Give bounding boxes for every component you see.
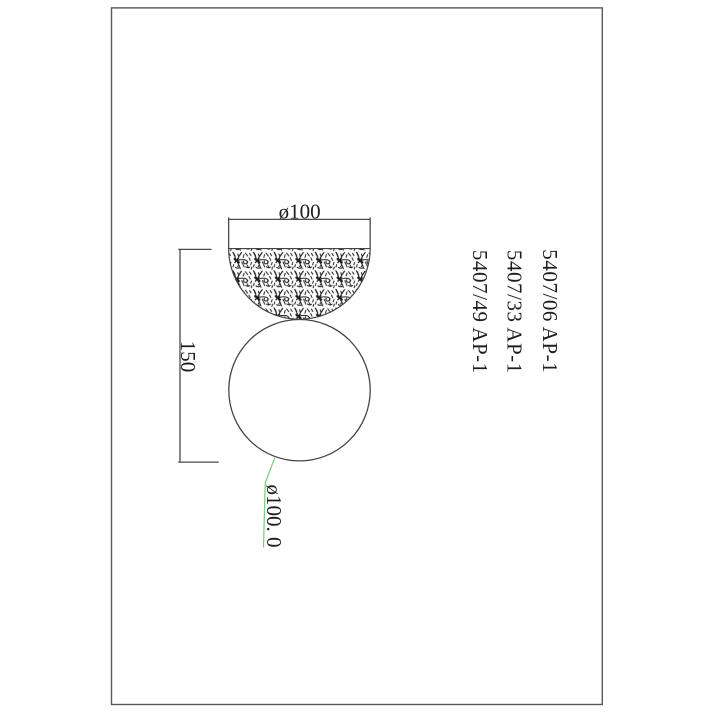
svg-text:5407/06 AP-1: 5407/06 AP-1 bbox=[538, 249, 562, 373]
svg-text:ø100: ø100 bbox=[279, 199, 321, 223]
svg-text:ø100. 0: ø100. 0 bbox=[262, 485, 286, 548]
svg-text:5407/33 AP-1: 5407/33 AP-1 bbox=[502, 250, 526, 374]
svg-text:150: 150 bbox=[176, 341, 200, 373]
svg-text:5407/49 AP-1: 5407/49 AP-1 bbox=[468, 250, 492, 374]
